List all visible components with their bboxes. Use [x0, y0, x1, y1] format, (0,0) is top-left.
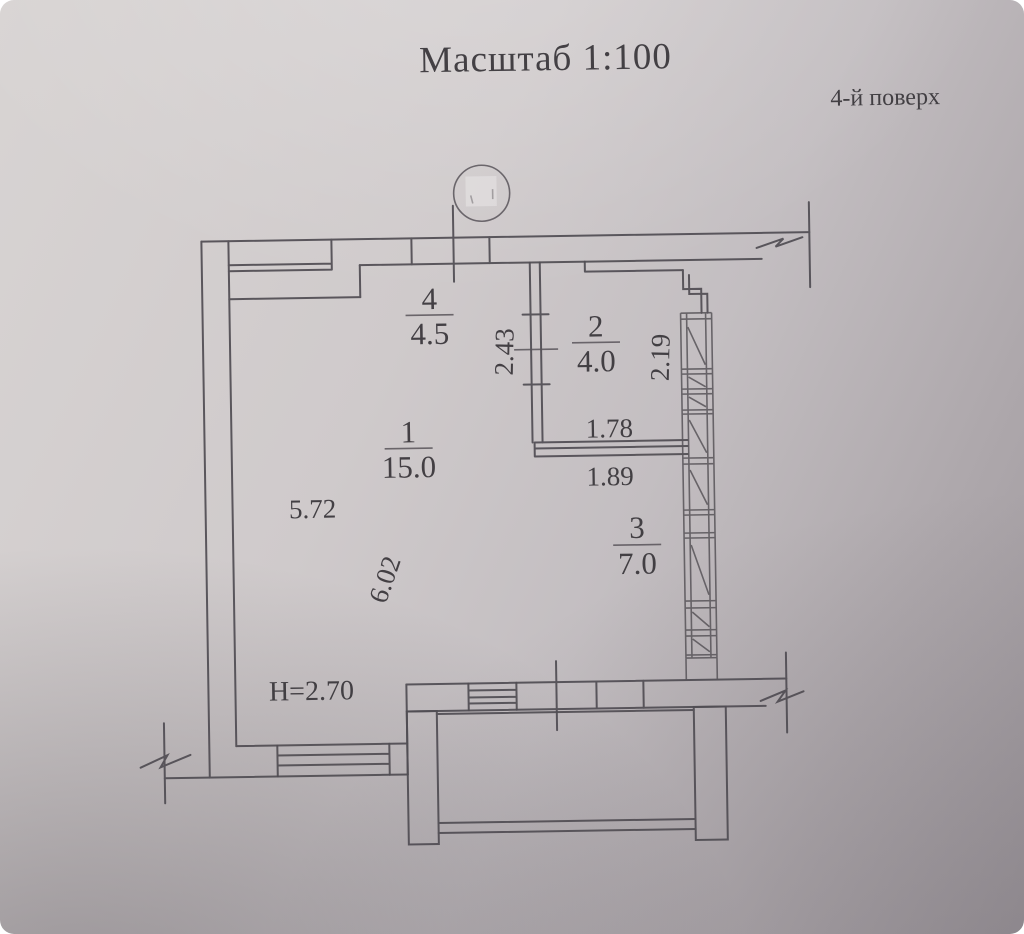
floor-label: 4-й поверх — [830, 84, 940, 112]
ceiling-height-label: H=2.70 — [269, 675, 354, 707]
svg-text:7.0: 7.0 — [618, 546, 657, 582]
svg-text:2: 2 — [588, 308, 604, 343]
dim-6-02: 6.02 — [363, 552, 407, 606]
window-room1 — [277, 744, 389, 777]
floor-plan-drawing: Масштаб 1:100 4-й поверх 4 4.5 2 4.0 1 1… — [0, 0, 1024, 934]
page-title: Масштаб 1:100 — [419, 36, 672, 81]
balcony-railing — [439, 819, 696, 833]
balcony-post-right — [694, 706, 728, 839]
svg-text:15.0: 15.0 — [382, 449, 437, 485]
room-label-1: 1 15.0 — [381, 414, 436, 485]
balcony-post-left — [407, 711, 439, 844]
dimension-ticks — [514, 349, 558, 350]
room-label-2: 2 4.0 — [571, 308, 620, 379]
room-label-4: 4 4.5 — [405, 281, 454, 352]
svg-text:4: 4 — [421, 281, 438, 316]
dim-5-72: 5.72 — [289, 494, 337, 525]
dim-1-78: 1.78 — [586, 413, 634, 444]
svg-text:4.5: 4.5 — [410, 316, 449, 352]
dim-2-43: 2.43 — [489, 328, 520, 376]
svg-text:3: 3 — [629, 510, 645, 545]
svg-text:1: 1 — [400, 414, 416, 449]
floor-plan-photo: Масштаб 1:100 4-й поверх 4 4.5 2 4.0 1 1… — [0, 0, 1024, 934]
stamp-circle — [453, 165, 510, 222]
dim-2-19: 2.19 — [645, 334, 676, 382]
window-loggia — [468, 683, 516, 711]
room-label-3: 3 7.0 — [613, 509, 662, 581]
dim-1-89: 1.89 — [586, 461, 634, 492]
svg-text:4.0: 4.0 — [577, 343, 616, 379]
balcony — [407, 706, 728, 844]
